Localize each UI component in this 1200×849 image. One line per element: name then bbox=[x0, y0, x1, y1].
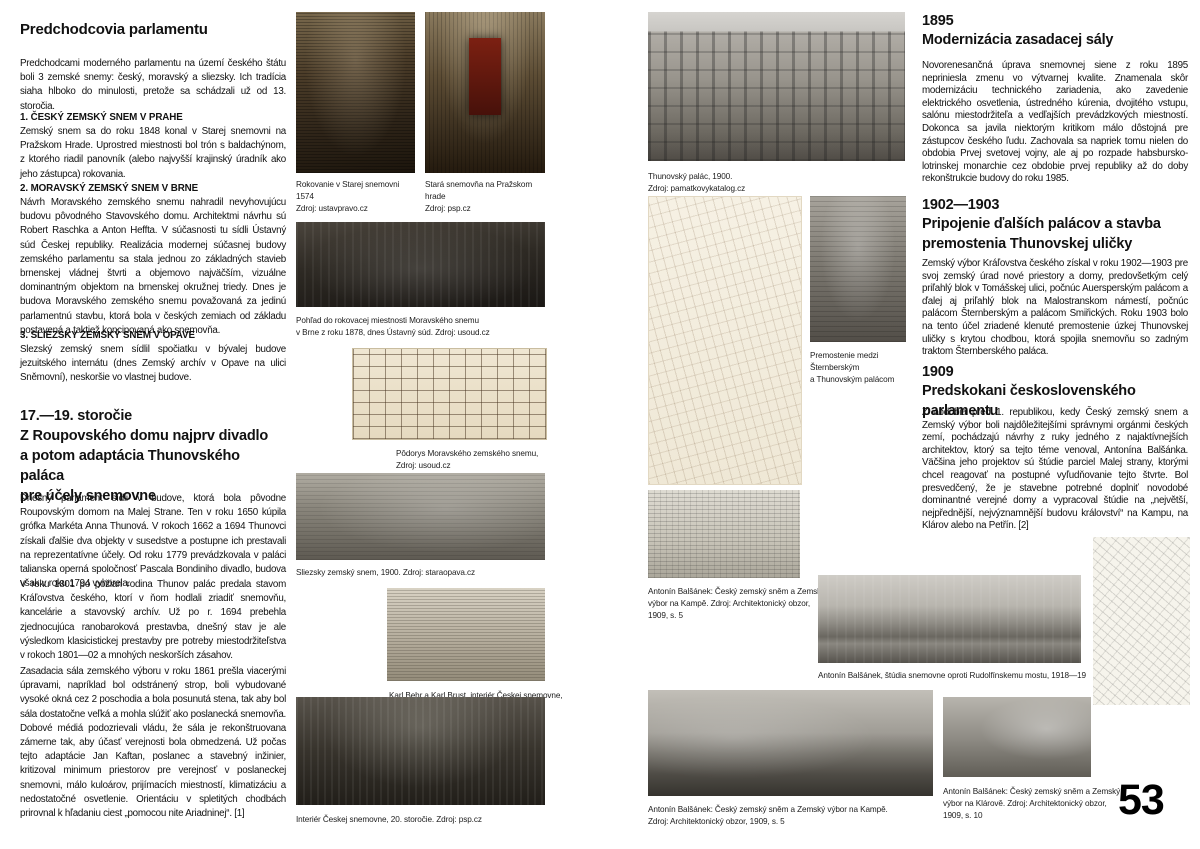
figure-kampa-panorama-photo bbox=[648, 690, 933, 796]
subsection-body-sliezsky-snem: Slezský zemský snem sídlil spočiatku v b… bbox=[20, 343, 286, 386]
page: Predchodcovia parlamentu Predchodcami mo… bbox=[0, 0, 1200, 849]
figure-klarov-photo bbox=[943, 697, 1091, 777]
figure-kampa-perspective-drawing bbox=[648, 490, 800, 578]
section-heading-1902-1903: Pripojenie ďalších palácov a stavbapremo… bbox=[922, 214, 1161, 254]
section-body-1902-1903: Zemský výbor Kráľovstva českého získal v… bbox=[922, 258, 1188, 359]
section-year-1909: 1909 bbox=[922, 363, 953, 381]
page-title: Predchodcovia parlamentu bbox=[20, 20, 208, 40]
figure-behr-brust-engraving bbox=[387, 588, 545, 681]
figure-caption: Rokovanie v Starej snemovni 1574Zdroj: u… bbox=[296, 179, 418, 215]
figure-caption: Antonín Balšánek, štúdia snemovne oproti… bbox=[818, 670, 1118, 682]
page-number: 53 bbox=[1118, 776, 1164, 825]
figure-caption: Sliezsky zemský snem, 1900. Zdroj: stara… bbox=[296, 567, 556, 579]
figure-caption: Pohľad do rokovacej miestnosti Moravskéh… bbox=[296, 315, 556, 339]
figure-caption: Antonín Balšánek: Český zemský sněm a Ze… bbox=[648, 804, 948, 828]
throne-canopy-shape bbox=[469, 38, 500, 115]
section-year-1902-1903: 1902—1903 bbox=[922, 196, 999, 214]
paragraph-zasadacia-sala: Zasadacia sála zemského výboru v roku 18… bbox=[20, 665, 286, 821]
figure-moravian-floor-plan bbox=[352, 348, 547, 440]
figure-caption: Thunovský palác, 1900.Zdroj: pamatkovyka… bbox=[648, 171, 848, 195]
figure-old-chamber-photo bbox=[425, 12, 545, 173]
left-column: Predchodcovia parlamentu Predchodcami mo… bbox=[20, 0, 286, 849]
figure-interior-20th-century-photo bbox=[296, 697, 545, 805]
figure-caption: Pôdorys Moravského zemského snemu,Zdroj:… bbox=[396, 448, 561, 472]
figure-caption: Interiér Českej snemovne, 20. storočie. … bbox=[296, 814, 556, 826]
section-year-1895: 1895 bbox=[922, 12, 953, 30]
subsection-body-cesky-snem: Zemský snem sa do roku 1848 konal v Star… bbox=[20, 125, 286, 182]
figure-rudolfinum-panorama-photo bbox=[818, 575, 1081, 663]
figure-thunovsky-palac-photo bbox=[648, 12, 905, 161]
paragraph-poziar-1801: V roku 1801 po požiari rodina Thunov pal… bbox=[20, 578, 286, 663]
figure-map-sketch bbox=[1093, 537, 1190, 705]
section-heading-17-19-storocie: 17.—19. storočieZ Roupovského domu najpr… bbox=[20, 406, 286, 506]
section-body-1895: Novorenesančná úprava snemovnej siene z … bbox=[922, 60, 1188, 186]
figure-bridge-photo bbox=[810, 196, 906, 342]
figure-silesian-snem-photo bbox=[296, 473, 545, 560]
figure-moravian-room-photo bbox=[296, 222, 545, 307]
figure-site-plan-drawing bbox=[648, 196, 802, 485]
subsection-body-moravsky-snem: Návrh Moravského zemského snemu nahradil… bbox=[20, 196, 286, 338]
paragraph-roupovsky-dom: Dnešný parlament sídli v budove, ktorá b… bbox=[20, 492, 286, 591]
figure-caption: Antonín Balšánek: Český zemský sněm a Ze… bbox=[943, 786, 1123, 822]
intro-paragraph: Predchodcami moderného parlamentu na úze… bbox=[20, 57, 286, 114]
figure-caption: Stará snemovňa na Pražskom hradeZdroj: p… bbox=[425, 179, 547, 215]
subsection-title-sliezsky-snem: 3. SLIEZSKY ZEMSKÝ SNEM V OPAVE bbox=[20, 329, 195, 343]
figure-caption: Premostenie medziŠternberskýma Thunovský… bbox=[810, 350, 925, 386]
figure-session-1574-engraving bbox=[296, 12, 415, 173]
subsection-title-cesky-snem: 1. ČESKÝ ZEMSKÝ SNEM V PRAHE bbox=[20, 111, 183, 125]
subsection-title-moravsky-snem: 2. MORAVSKÝ ZEMSKÝ SNEM V BRNE bbox=[20, 182, 198, 196]
section-body-1909: Z obdobia pred 1. republikou, kedy Český… bbox=[922, 407, 1188, 533]
section-heading-1895: Modernizácia zasadacej sály bbox=[922, 30, 1113, 50]
